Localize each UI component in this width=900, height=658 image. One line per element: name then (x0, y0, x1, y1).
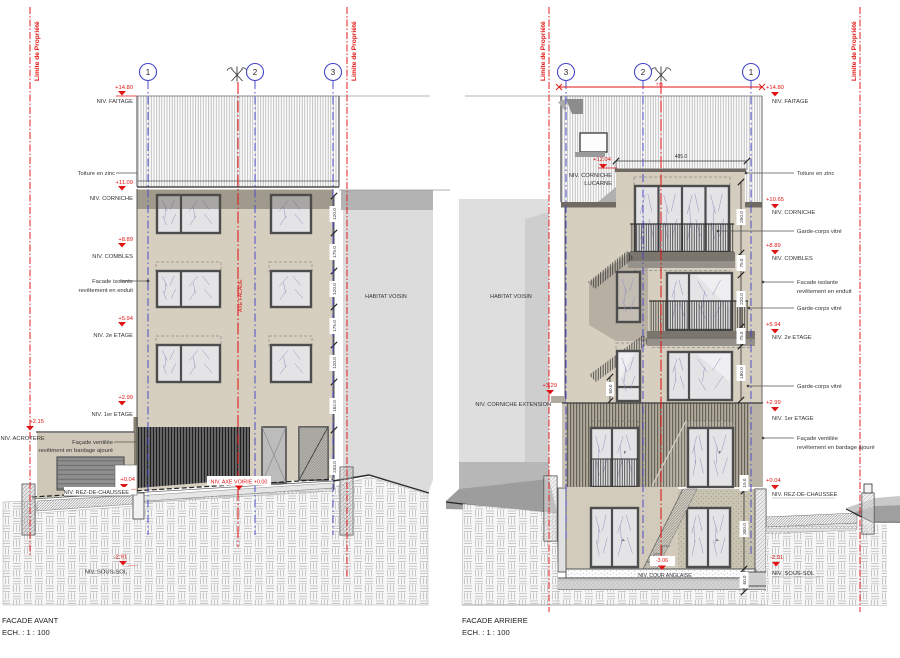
svg-text:300.0: 300.0 (742, 523, 747, 535)
svg-text:FACADE AVANT: FACADE AVANT (2, 616, 59, 625)
svg-text:233.0: 233.0 (332, 461, 337, 473)
svg-text:+0.04: +0.04 (766, 478, 781, 484)
svg-text:revêtement en enduit: revêtement en enduit (797, 289, 852, 295)
svg-text:+12.04: +12.04 (593, 157, 612, 163)
svg-text:175.0: 175.0 (332, 246, 337, 258)
svg-text:+8.89: +8.89 (118, 237, 133, 243)
svg-text:NIV. 1er ETAGE: NIV. 1er ETAGE (91, 412, 133, 418)
svg-text:NIV. FAITAGE: NIV. FAITAGE (772, 99, 809, 105)
svg-text:2: 2 (253, 68, 258, 77)
svg-text:revêtement en enduit: revêtement en enduit (79, 288, 134, 294)
svg-text:15.0: 15.0 (742, 478, 747, 487)
svg-text:+8.89: +8.89 (766, 243, 781, 249)
svg-text:NIV. SOUS-SOL: NIV. SOUS-SOL (772, 571, 815, 577)
svg-text:2: 2 (641, 68, 646, 77)
svg-text:1: 1 (146, 68, 151, 77)
svg-text:NIV. ACROTERE: NIV. ACROTERE (1, 436, 45, 442)
svg-text:NIV. CORNICHE: NIV. CORNICHE (569, 173, 612, 179)
svg-text:+3.29: +3.29 (542, 383, 557, 389)
svg-text:120.0: 120.0 (332, 357, 337, 369)
svg-text:NIV. SOUS-SOL: NIV. SOUS-SOL (85, 570, 128, 576)
svg-text:+11.09: +11.09 (116, 180, 133, 186)
svg-text:FACADE ARRIERE: FACADE ARRIERE (462, 616, 528, 625)
svg-text:revêtement en bardage ajouré: revêtement en bardage ajouré (797, 445, 875, 451)
svg-text:60.0: 60.0 (742, 575, 747, 584)
svg-text:AXE FACADE: AXE FACADE (238, 279, 244, 312)
svg-text:3: 3 (331, 68, 336, 77)
svg-text:LUCARNE: LUCARNE (584, 181, 612, 187)
svg-text:Garde-corps vitré: Garde-corps vitré (797, 306, 842, 312)
svg-text:485.0: 485.0 (675, 154, 688, 160)
svg-text:ECH. : 1 : 100: ECH. : 1 : 100 (2, 628, 50, 637)
svg-text:F: F (719, 450, 722, 455)
svg-text:Facade isolante: Facade isolante (797, 280, 838, 286)
svg-text:3: 3 (564, 68, 569, 77)
svg-text:NIV. COMBLES: NIV. COMBLES (772, 256, 813, 262)
svg-text:+0.04: +0.04 (120, 477, 135, 483)
svg-text:+14.80: +14.80 (766, 85, 784, 91)
svg-text:NIV. REZ-DE-CHAUSSEE: NIV. REZ-DE-CHAUSSEE (772, 492, 838, 498)
svg-text:Garde-corps vitré: Garde-corps vitré (797, 229, 842, 235)
svg-text:NIV. COMBLES: NIV. COMBLES (92, 254, 133, 260)
svg-text:-2.91: -2.91 (114, 555, 127, 561)
svg-text:F: F (624, 450, 627, 455)
svg-text:220.0: 220.0 (739, 293, 744, 305)
svg-text:+5.94: +5.94 (118, 316, 133, 322)
svg-text:+2.99: +2.99 (766, 400, 781, 406)
svg-text:Facade isolante: Facade isolante (92, 279, 133, 285)
svg-text:NIV. 1er ETAGE: NIV. 1er ETAGE (772, 416, 814, 422)
svg-text:-3.06: -3.06 (656, 558, 668, 564)
svg-text:NIV. CORNICHE EXTENSION: NIV. CORNICHE EXTENSION (475, 402, 551, 408)
svg-text:60.0: 60.0 (608, 384, 613, 393)
svg-text:F: F (621, 538, 626, 541)
svg-text:ECH. : 1 : 100: ECH. : 1 : 100 (462, 628, 510, 637)
svg-text:Façade ventilée: Façade ventilée (797, 436, 838, 442)
svg-text:Limite de Propriété: Limite de Propriété (851, 21, 858, 81)
svg-text:162.0: 162.0 (332, 400, 337, 412)
svg-text:175.0: 175.0 (332, 320, 337, 332)
svg-text:Limite de Propriété: Limite de Propriété (540, 21, 547, 81)
svg-text:120.0: 120.0 (332, 283, 337, 295)
svg-text:75.0: 75.0 (739, 258, 744, 267)
svg-text:NIV. CORNICHE: NIV. CORNICHE (772, 210, 815, 216)
svg-text:120.0: 120.0 (332, 208, 337, 220)
svg-text:HABITAT VOISIN: HABITAT VOISIN (365, 294, 407, 300)
svg-text:Toiture en zinc: Toiture en zinc (797, 171, 834, 177)
svg-text:revêtment en bardage ajouré: revêtment en bardage ajouré (39, 448, 113, 454)
svg-text:+2.99: +2.99 (118, 395, 133, 401)
svg-text:+10.65: +10.65 (766, 197, 784, 203)
svg-text:NIV. FAITAGE: NIV. FAITAGE (97, 99, 134, 105)
svg-text:770: 770 (656, 82, 664, 87)
svg-text:NIV. 2e ETAGE: NIV. 2e ETAGE (93, 333, 133, 339)
svg-text:250.0: 250.0 (739, 211, 744, 223)
svg-text:NIV. CORNICHE: NIV. CORNICHE (90, 196, 133, 202)
svg-text:NIV. AXE VOIRIE +0.00: NIV. AXE VOIRIE +0.00 (211, 480, 268, 486)
svg-text:Limite de Propriété: Limite de Propriété (351, 21, 358, 81)
svg-text:+2.15: +2.15 (29, 419, 44, 425)
svg-text:HABITAT VOISIN: HABITAT VOISIN (490, 294, 532, 300)
svg-text:Garde-corps vitré: Garde-corps vitré (797, 384, 842, 390)
svg-text:-2.91: -2.91 (770, 555, 783, 561)
svg-text:F: F (715, 538, 720, 541)
svg-text:+5.94: +5.94 (766, 322, 781, 328)
svg-text:75.0: 75.0 (739, 331, 744, 340)
svg-text:+14.80: +14.80 (115, 85, 133, 91)
svg-text:Toiture en zinc: Toiture en zinc (78, 171, 115, 177)
svg-text:NIV. REZ-DE-CHAUSSEE: NIV. REZ-DE-CHAUSSEE (64, 490, 130, 496)
svg-text:NIV. 2e ETAGE: NIV. 2e ETAGE (772, 335, 812, 341)
svg-text:Limite de Propriété: Limite de Propriété (34, 21, 41, 81)
svg-text:180.0: 180.0 (739, 367, 744, 379)
svg-text:1: 1 (749, 68, 754, 77)
svg-text:Façade ventilée: Façade ventilée (72, 440, 113, 446)
svg-text:NIV. COUR ANGLAISE: NIV. COUR ANGLAISE (638, 573, 692, 579)
